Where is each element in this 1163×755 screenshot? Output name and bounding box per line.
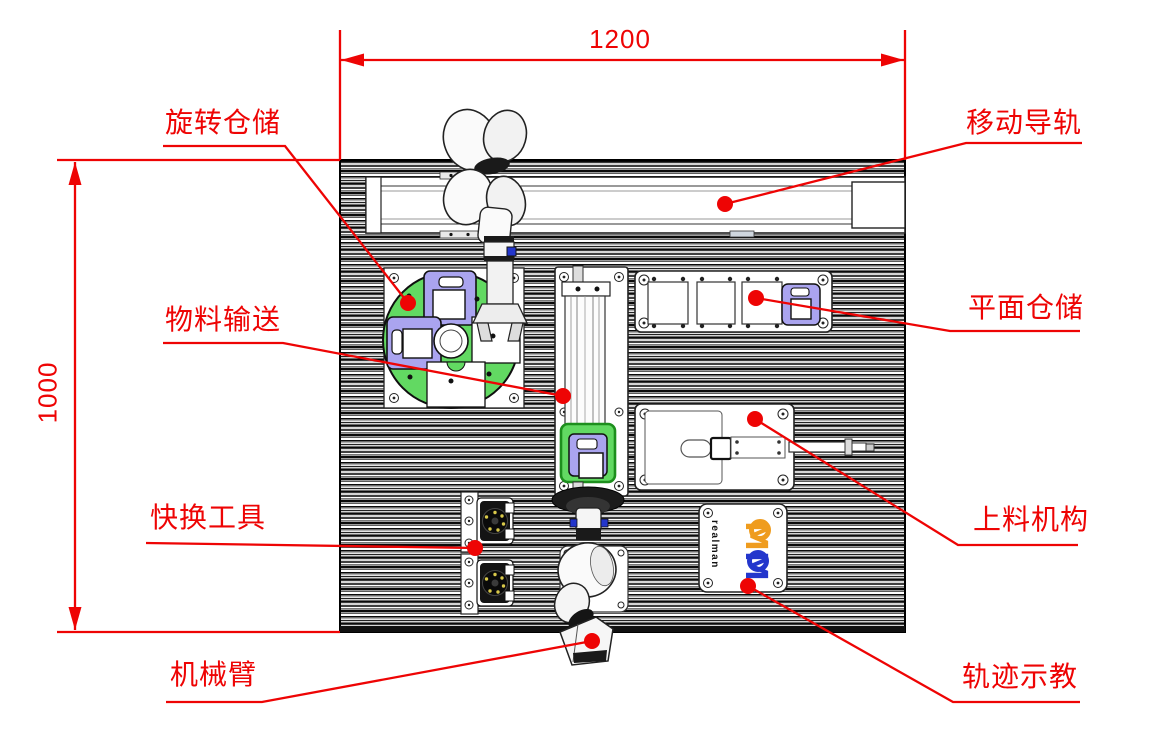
planar-storage-graphic — [635, 271, 832, 332]
dimension-width-value: 1200 — [540, 24, 700, 55]
label-moving-rail: 移动导轨 — [966, 108, 1082, 139]
label-quick-change-tool: 快换工具 — [150, 503, 266, 534]
label-robot-arm: 机械臂 — [170, 660, 257, 691]
label-rotary-storage: 旋转仓储 — [165, 108, 281, 139]
label-material-conveying: 物料输送 — [165, 305, 281, 336]
brand-text: realman — [709, 520, 720, 569]
material-conveyor-graphic — [555, 266, 628, 496]
engineering-diagram: realman M M — [0, 0, 1163, 755]
label-planar-storage: 平面仓储 — [968, 293, 1084, 324]
label-trajectory-teaching: 轨迹示教 — [962, 662, 1078, 693]
label-loading-mechanism: 上料机构 — [973, 505, 1089, 536]
trajectory-teaching-plate-graphic: realman M M — [699, 504, 787, 592]
dimension-height — [57, 160, 340, 632]
dimension-height-value: 1000 — [33, 347, 64, 439]
